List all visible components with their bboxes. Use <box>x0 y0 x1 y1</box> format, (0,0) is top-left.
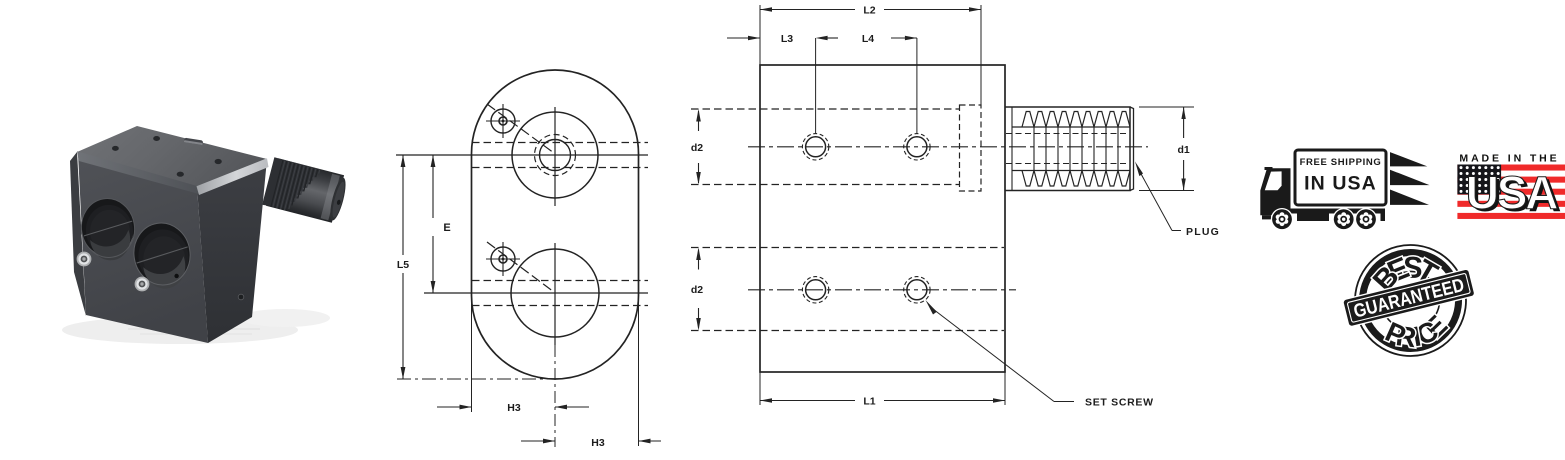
svg-text:H3: H3 <box>591 437 605 449</box>
svg-text:H3: H3 <box>507 402 521 414</box>
svg-text:SET SCREW: SET SCREW <box>1085 397 1154 409</box>
svg-text:d1: d1 <box>1177 144 1189 156</box>
svg-text:IN USA: IN USA <box>1304 173 1377 195</box>
svg-text:L3: L3 <box>781 33 793 45</box>
svg-text:PLUG: PLUG <box>1186 226 1220 238</box>
svg-text:L1: L1 <box>863 396 875 408</box>
svg-text:E: E <box>443 222 450 234</box>
svg-text:L5: L5 <box>397 259 409 271</box>
svg-text:L4: L4 <box>862 33 874 45</box>
svg-text:d2: d2 <box>691 284 703 296</box>
svg-text:L2: L2 <box>863 5 875 17</box>
svg-text:MADE IN THE: MADE IN THE <box>1459 152 1559 164</box>
svg-text:FREE SHIPPING: FREE SHIPPING <box>1300 157 1382 168</box>
svg-text:d2: d2 <box>691 142 703 154</box>
svg-text:USA: USA <box>1466 167 1558 219</box>
